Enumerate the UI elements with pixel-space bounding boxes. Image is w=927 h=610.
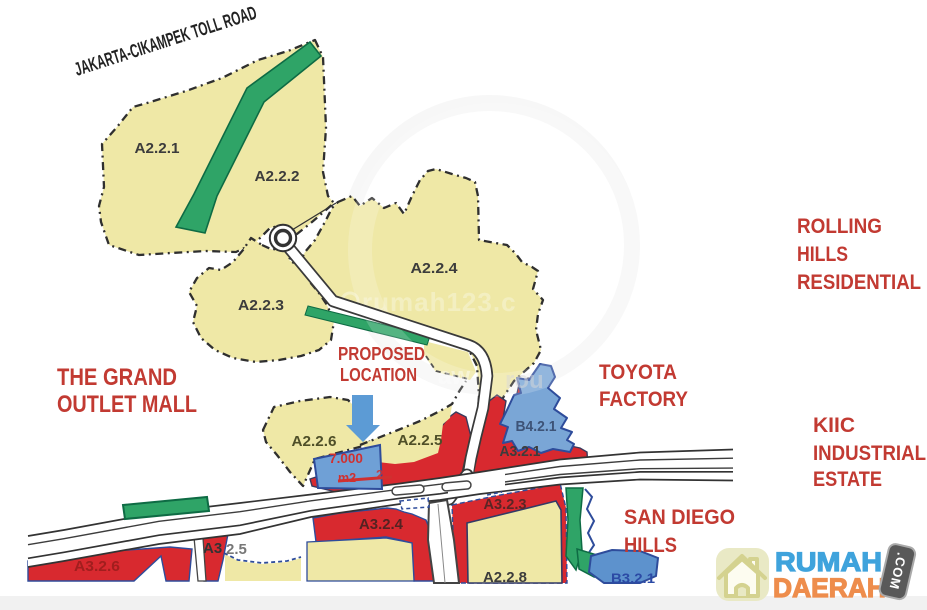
svg-text:TOYOTA: TOYOTA <box>599 361 677 384</box>
svg-text:FACTORY: FACTORY <box>599 388 688 411</box>
svg-text:THE GRAND: THE GRAND <box>57 364 177 391</box>
svg-text:KIIC: KIIC <box>813 414 855 437</box>
svg-text:A3: A3 <box>203 540 222 557</box>
svg-text:ROLLING: ROLLING <box>797 214 882 238</box>
svg-text:A2.2.6: A2.2.6 <box>292 434 337 450</box>
svg-text:HILLS: HILLS <box>624 534 677 557</box>
svg-text:A3.2.1: A3.2.1 <box>500 444 541 460</box>
svg-text:7.000: 7.000 <box>329 451 363 466</box>
svg-text:A2.2.2: A2.2.2 <box>255 169 300 185</box>
svg-text:A3.2.6: A3.2.6 <box>74 558 120 575</box>
svg-text:B3.2.1: B3.2.1 <box>611 570 655 586</box>
svg-text:2: 2 <box>376 467 383 482</box>
svg-text:LOCATION: LOCATION <box>340 365 417 385</box>
svg-text:A2.2.3: A2.2.3 <box>238 298 284 314</box>
svg-text:INDUSTRIAL: INDUSTRIAL <box>813 442 926 465</box>
svg-text:A2.2.5: A2.2.5 <box>398 433 443 449</box>
svg-text:HILLS: HILLS <box>797 242 848 266</box>
svg-text:2.5: 2.5 <box>226 541 247 558</box>
svg-text:A2.2.4: A2.2.4 <box>411 261 458 277</box>
svg-text:PROPOSED: PROPOSED <box>338 344 425 364</box>
svg-text:A3.2.3: A3.2.3 <box>484 497 527 513</box>
svg-text:OUTLET MALL: OUTLET MALL <box>57 391 197 418</box>
svg-text:DAERAH: DAERAH <box>773 573 886 603</box>
svg-text:SAN DIEGO: SAN DIEGO <box>624 506 735 529</box>
svg-text:A3.2.4: A3.2.4 <box>359 517 403 533</box>
svg-text:A2.2.8: A2.2.8 <box>483 570 527 586</box>
svg-text:m2: m2 <box>338 471 356 485</box>
svg-text:aw: aw <box>438 363 470 390</box>
svg-text:ESTATE: ESTATE <box>813 468 882 491</box>
svg-text:RESIDENTIAL: RESIDENTIAL <box>797 270 921 294</box>
svg-text:A2.2.1: A2.2.1 <box>135 141 180 157</box>
svg-text:rou: rou <box>505 367 544 394</box>
svg-text:B4.2.1: B4.2.1 <box>516 419 557 435</box>
